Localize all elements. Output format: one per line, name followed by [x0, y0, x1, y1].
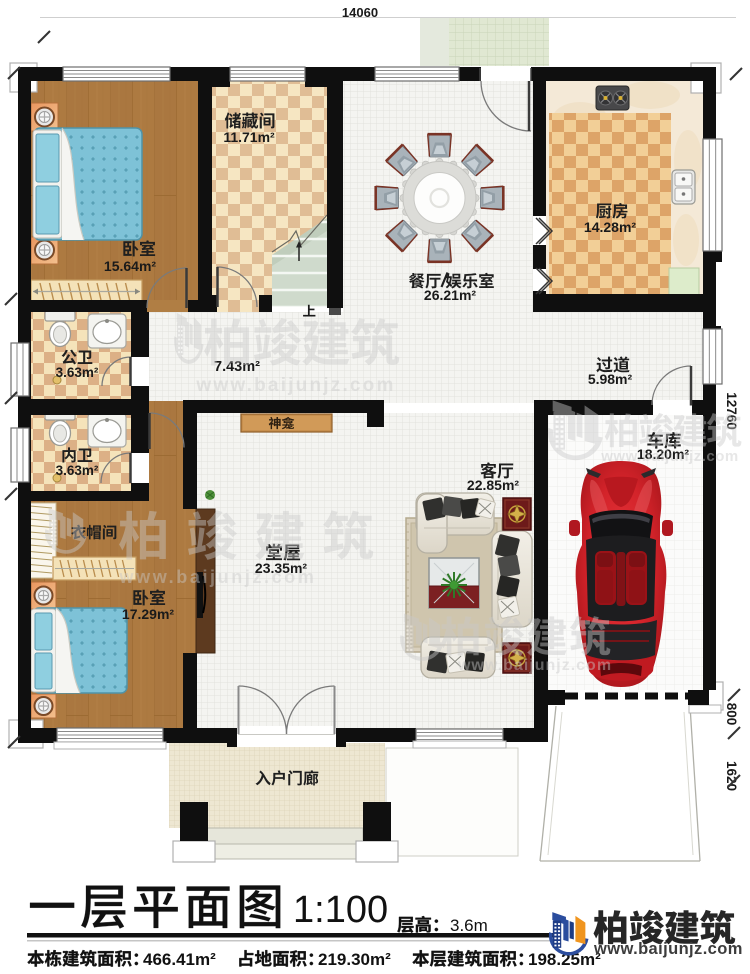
svg-text:www.baijunjz.com: www.baijunjz.com [457, 657, 612, 674]
svg-text:22.85m²: 22.85m² [467, 477, 519, 493]
svg-text:www.baijunjz.com: www.baijunjz.com [593, 940, 743, 958]
svg-text:www.baijunjz.com: www.baijunjz.com [119, 567, 317, 587]
svg-text:11.71m²: 11.71m² [223, 129, 275, 145]
svg-text:3.63m²: 3.63m² [56, 365, 99, 380]
svg-text:15.64m²: 15.64m² [104, 258, 156, 274]
svg-text:3.63m²: 3.63m² [56, 463, 99, 478]
svg-text:www.baijunjz.com: www.baijunjz.com [195, 375, 395, 396]
svg-text:14.28m²: 14.28m² [584, 219, 636, 235]
svg-text:17.29m²: 17.29m² [122, 606, 174, 622]
svg-text:219.30m²: 219.30m² [318, 950, 391, 969]
svg-text:1620: 1620 [724, 761, 739, 791]
svg-text:5.98m²: 5.98m² [588, 371, 633, 387]
svg-text:14060: 14060 [342, 5, 378, 20]
svg-text:3.6m: 3.6m [450, 916, 488, 935]
svg-text:800: 800 [724, 703, 739, 726]
svg-text:26.21m²: 26.21m² [424, 287, 476, 303]
svg-text:www.baijunjz.com: www.baijunjz.com [600, 448, 738, 465]
svg-text:466.41m²: 466.41m² [143, 950, 216, 969]
svg-text:1:100: 1:100 [293, 889, 388, 931]
